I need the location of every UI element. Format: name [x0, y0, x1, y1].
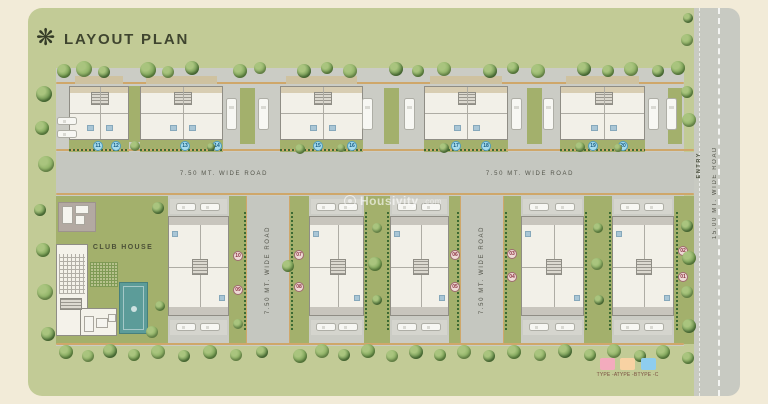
car-icon	[316, 323, 336, 331]
unit-number-badge: 07	[294, 250, 304, 260]
unit-number-badge: 18	[481, 141, 491, 151]
curb-line	[503, 196, 505, 344]
tree-icon	[103, 344, 117, 358]
car-icon	[200, 203, 220, 211]
legend-label: TYPE -C	[637, 372, 659, 378]
gym-equipment	[75, 215, 85, 225]
watermark-suffix: .com	[423, 197, 442, 206]
car-icon	[529, 203, 549, 211]
car-icon	[543, 98, 554, 130]
tree-icon	[152, 202, 164, 214]
unit-number-badge: 08	[294, 282, 304, 292]
car-icon	[620, 203, 640, 211]
tree-icon	[624, 62, 638, 76]
car-icon	[57, 130, 77, 138]
car-icon	[529, 323, 549, 331]
tree-icon	[37, 284, 53, 300]
tree-icon	[59, 345, 73, 359]
road-label-vertical: 7.50 MT. WIDE ROAD	[265, 226, 271, 314]
car-icon	[555, 203, 575, 211]
tree-icon	[338, 349, 350, 361]
unit-number-badge: 01	[678, 272, 688, 282]
lawn-patch	[527, 88, 542, 144]
roof-cap	[169, 307, 228, 315]
curb-line	[460, 196, 462, 344]
tree-icon	[282, 260, 294, 272]
tree-icon	[671, 61, 685, 75]
legend-swatch	[600, 358, 615, 370]
hedge-column	[505, 210, 507, 330]
bath-tile	[591, 125, 598, 131]
tree-icon	[558, 344, 572, 358]
roof-cap	[169, 217, 228, 225]
stair-hatch	[546, 259, 562, 275]
tree-icon	[293, 349, 307, 363]
stair-hatch	[636, 259, 652, 275]
unit-number-badge: 10	[233, 251, 243, 261]
hedge-column	[676, 210, 678, 330]
tree-icon	[681, 86, 693, 98]
backyard-strip	[566, 76, 639, 84]
tree-icon	[372, 295, 382, 305]
tree-icon	[681, 286, 693, 298]
tree-icon	[577, 62, 591, 76]
unit-number-badge: 16	[347, 141, 357, 151]
bath-tile	[106, 125, 113, 131]
tree-icon	[681, 34, 693, 46]
bath-tile	[170, 125, 177, 131]
lawn-patch	[240, 88, 255, 144]
car-icon	[338, 323, 358, 331]
tree-icon	[36, 86, 52, 102]
tree-icon	[162, 66, 174, 78]
road-label-right: 7.50 MT. WIDE ROAD	[486, 171, 574, 177]
tree-icon	[412, 65, 424, 77]
car-icon	[644, 203, 664, 211]
villa-block	[521, 216, 584, 316]
car-icon	[200, 323, 220, 331]
unit-number-badge: 05	[450, 282, 460, 292]
watermark-text: Housivity	[360, 194, 419, 208]
tree-icon	[76, 61, 92, 77]
tree-icon	[507, 345, 521, 359]
tree-icon	[203, 345, 217, 359]
car-icon	[176, 203, 196, 211]
road-edge-dash	[699, 8, 700, 396]
watermark-logo-icon	[344, 195, 356, 207]
tree-icon	[178, 350, 190, 362]
unit-number-badge: 19	[588, 141, 598, 151]
tree-icon	[254, 62, 266, 74]
tree-icon	[207, 143, 215, 151]
tree-icon	[656, 345, 670, 359]
car-icon	[644, 323, 664, 331]
hedge-row	[424, 149, 508, 151]
tree-icon	[531, 64, 545, 78]
bath-tile	[664, 295, 670, 301]
roof-cap	[522, 217, 583, 225]
bath-tile	[574, 295, 580, 301]
roof-cap	[391, 307, 448, 315]
tree-icon	[534, 349, 546, 361]
tree-icon	[372, 223, 382, 233]
tree-icon	[681, 220, 693, 232]
row-house-block	[69, 86, 129, 140]
tree-icon	[233, 319, 243, 329]
tree-icon	[389, 62, 403, 76]
tree-icon	[130, 141, 140, 151]
layout-plan-screenshot: ❋ LAYOUT PLAN 7.50 MT. WIDE ROAD 7.50 MT…	[0, 0, 768, 404]
tree-icon	[57, 64, 71, 78]
tree-icon	[652, 65, 664, 77]
car-icon	[362, 98, 373, 130]
wall-line	[141, 113, 222, 114]
bath-tile	[473, 125, 480, 131]
unit-number-badge: 04	[507, 272, 517, 282]
legend-label: TYPE -A	[596, 372, 618, 378]
legend-swatch	[620, 358, 635, 370]
bath-tile	[313, 231, 319, 237]
bath-tile	[329, 125, 336, 131]
roof-cap	[613, 217, 673, 225]
hedge-column	[609, 210, 611, 330]
unit-number-badge: 09	[233, 285, 243, 295]
tree-icon	[507, 62, 519, 74]
backyard-strip	[75, 76, 123, 84]
tree-icon	[146, 326, 158, 338]
bath-tile	[87, 125, 94, 131]
car-icon	[555, 323, 575, 331]
clubhouse-stairs	[60, 298, 82, 310]
tree-icon	[483, 64, 497, 78]
clubhouse-label: CLUB HOUSE	[92, 244, 154, 251]
bath-tile	[439, 295, 445, 301]
entry-road-label: 15.00 MT. WIDE ROAD	[712, 146, 718, 239]
car-icon	[666, 98, 677, 130]
unit-number-badge: 12	[111, 141, 121, 151]
bath-tile	[616, 231, 622, 237]
brand-mandala-icon: ❋	[36, 26, 55, 49]
roof-cap	[391, 217, 448, 225]
tree-icon	[343, 64, 357, 78]
tree-icon	[297, 64, 311, 78]
tree-icon	[584, 349, 596, 361]
tree-icon	[230, 349, 242, 361]
tree-icon	[386, 350, 398, 362]
bath-tile	[219, 295, 225, 301]
hedge-column	[585, 210, 587, 330]
tree-icon	[128, 349, 140, 361]
gym-equipment	[96, 318, 108, 328]
tree-icon	[315, 344, 329, 358]
hedge-column	[387, 210, 389, 330]
tree-icon	[82, 350, 94, 362]
bath-tile	[310, 125, 317, 131]
wall-line	[425, 113, 507, 114]
roof-cap	[522, 307, 583, 315]
tree-icon	[321, 62, 333, 74]
tree-icon	[368, 257, 382, 271]
tree-icon	[185, 61, 199, 75]
tree-icon	[575, 142, 585, 152]
villa-block	[309, 216, 364, 316]
tree-icon	[155, 301, 165, 311]
tree-icon	[36, 243, 50, 257]
tree-icon	[41, 327, 55, 341]
gym-equipment	[84, 316, 94, 332]
unit-number-badge: 11	[93, 141, 103, 151]
wall-line	[561, 113, 644, 114]
villa-block	[168, 216, 229, 316]
hedge-column	[365, 210, 367, 330]
tree-icon	[682, 352, 694, 364]
bath-tile	[354, 295, 360, 301]
tree-icon	[682, 113, 696, 127]
tree-icon	[409, 345, 423, 359]
tree-icon	[34, 204, 46, 216]
roof-cap	[310, 307, 363, 315]
car-icon	[57, 117, 77, 125]
lawn-patch	[584, 196, 612, 344]
clubhouse-pergola	[90, 262, 118, 287]
gym-equipment	[75, 205, 89, 214]
car-icon	[258, 98, 269, 130]
tree-icon	[437, 62, 451, 76]
car-icon	[648, 98, 659, 130]
hedge-row	[560, 149, 645, 151]
tree-icon	[98, 66, 110, 78]
unit-number-badge: 15	[313, 141, 323, 151]
tree-icon	[602, 65, 614, 77]
swimming-pool	[119, 282, 148, 334]
tree-icon	[483, 350, 495, 362]
tree-icon	[295, 144, 305, 154]
villa-block	[612, 216, 674, 316]
entry-label: ENTRY	[696, 152, 702, 178]
bath-tile	[454, 125, 461, 131]
tree-icon	[683, 13, 693, 23]
bath-tile	[394, 231, 400, 237]
tree-icon	[337, 144, 345, 152]
stair-hatch	[330, 259, 346, 275]
tree-icon	[434, 349, 446, 361]
tree-icon	[457, 345, 471, 359]
road-center-dash	[718, 8, 720, 396]
tree-icon	[35, 121, 49, 135]
legend-label: TYPE -B	[616, 372, 638, 378]
bath-tile	[525, 231, 531, 237]
tree-icon	[233, 64, 247, 78]
car-icon	[421, 323, 441, 331]
tree-icon	[256, 346, 268, 358]
car-icon	[397, 323, 417, 331]
gym-equipment	[62, 206, 73, 224]
car-icon	[316, 203, 336, 211]
lawn-patch	[384, 88, 399, 144]
tree-icon	[140, 62, 156, 78]
row-house-block	[140, 86, 223, 140]
roof-cap	[310, 217, 363, 225]
unit-number-badge: 13	[180, 141, 190, 151]
legend-item: TYPE -A	[596, 358, 618, 378]
tree-icon	[593, 223, 603, 233]
car-icon	[404, 98, 415, 130]
tree-icon	[439, 143, 449, 153]
hedge-column	[244, 210, 246, 330]
legend-swatch	[641, 358, 656, 370]
bath-tile	[172, 231, 178, 237]
villa-block	[390, 216, 449, 316]
legend-item: TYPE -B	[616, 358, 638, 378]
row-house-block	[280, 86, 363, 140]
car-icon	[511, 98, 522, 130]
unit-number-badge: 03	[507, 249, 517, 259]
tree-icon	[591, 258, 603, 270]
watermark: Housivity .com	[344, 194, 442, 208]
car-icon	[176, 323, 196, 331]
road-label-left: 7.50 MT. WIDE ROAD	[180, 171, 268, 177]
road-horizontal	[56, 152, 694, 194]
page-title: LAYOUT PLAN	[64, 31, 189, 48]
legend-item: TYPE -C	[637, 358, 659, 378]
stair-hatch	[413, 259, 429, 275]
stair-hatch	[192, 259, 208, 275]
tree-icon	[614, 144, 622, 152]
unit-number-badge: 06	[450, 250, 460, 260]
bath-tile	[610, 125, 617, 131]
lawn-patch	[129, 86, 140, 142]
gym-equipment	[108, 314, 116, 322]
tree-icon	[607, 344, 621, 358]
row-house-block	[560, 86, 645, 140]
row-house-block	[424, 86, 508, 140]
clubhouse-seating	[59, 254, 85, 294]
pool-ladder-icon	[131, 306, 137, 312]
backyard-strip	[146, 76, 217, 84]
roof-cap	[613, 307, 673, 315]
unit-number-badge: 17	[451, 141, 461, 151]
tree-icon	[361, 344, 375, 358]
road-label-vertical: 7.50 MT. WIDE ROAD	[479, 226, 485, 314]
tree-icon	[151, 345, 165, 359]
car-icon	[620, 323, 640, 331]
hedge-column	[457, 210, 459, 330]
tree-icon	[594, 295, 604, 305]
tree-icon	[682, 251, 696, 265]
car-icon	[226, 98, 237, 130]
wall-line	[281, 113, 362, 114]
bath-tile	[189, 125, 196, 131]
tree-icon	[38, 156, 54, 172]
tree-icon	[682, 319, 696, 333]
wall-line	[70, 113, 128, 114]
road-vertical: 7.50 MT. WIDE ROAD	[461, 196, 503, 344]
